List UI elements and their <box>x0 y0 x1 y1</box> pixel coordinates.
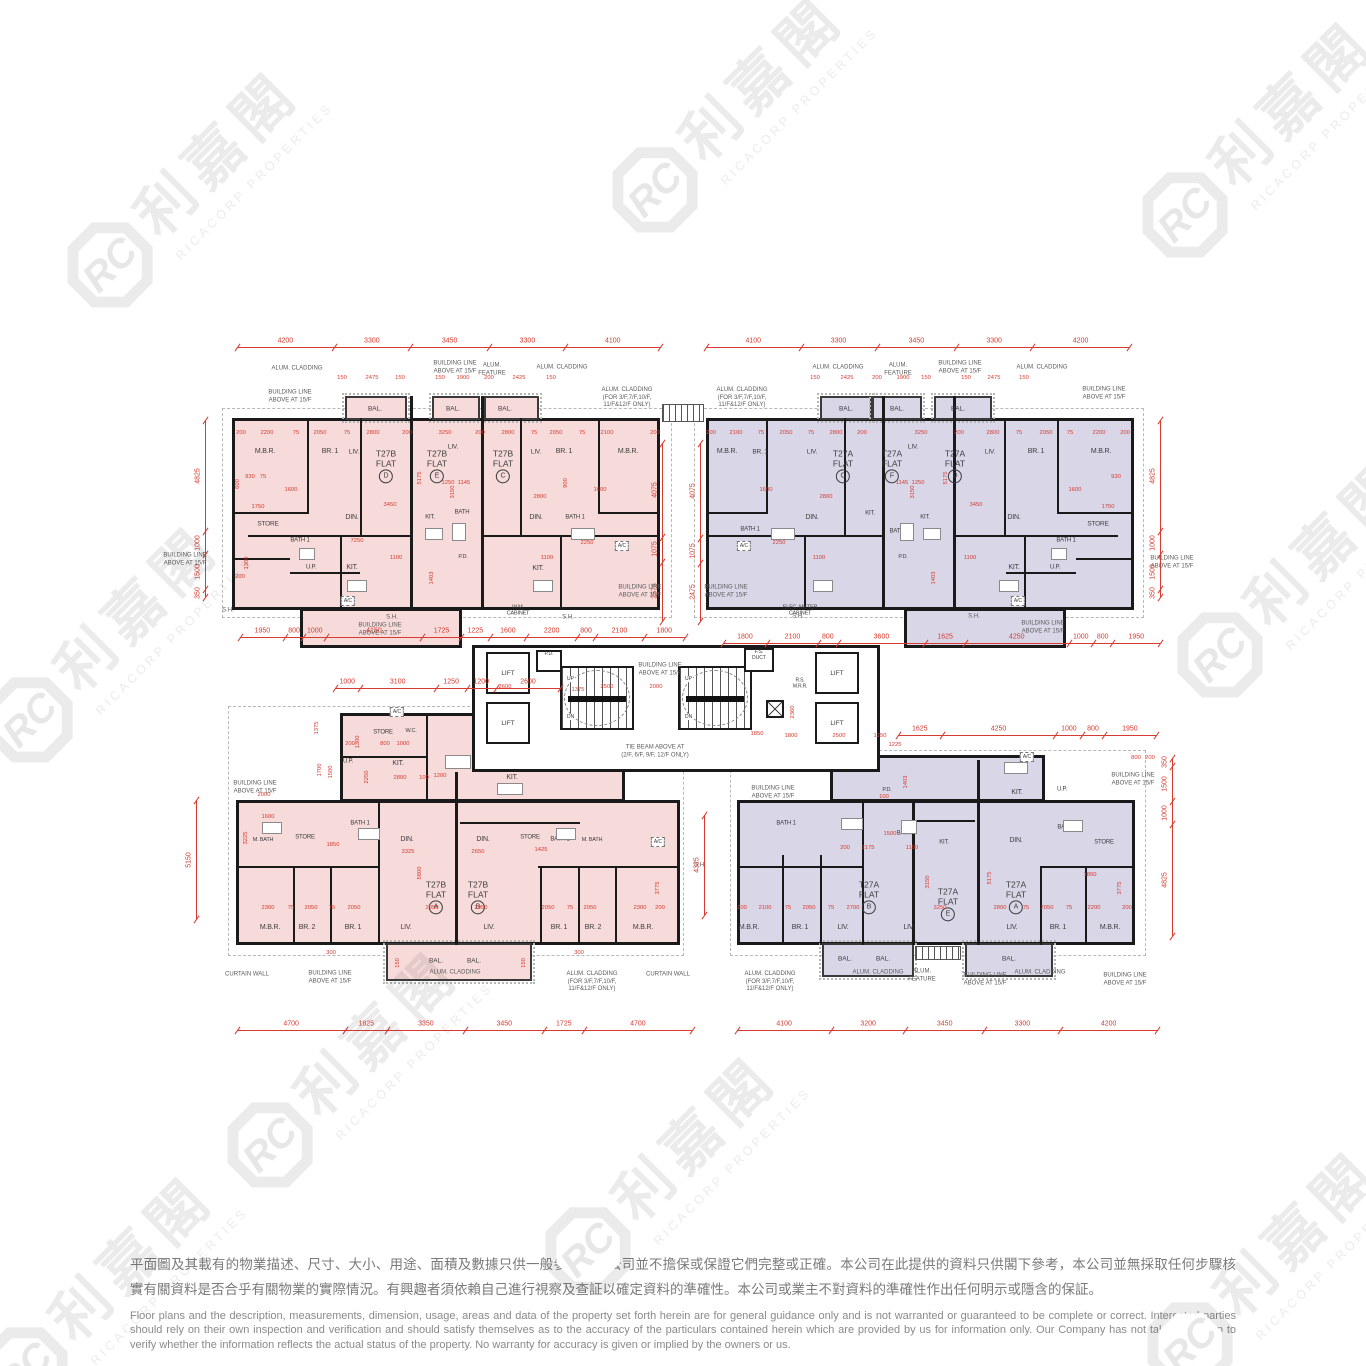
room-label: LIV. <box>349 448 359 455</box>
annotation-label: ALUM. FEATURE <box>908 969 936 984</box>
wall-segment <box>977 760 980 945</box>
dim-label: 3450 <box>442 338 458 345</box>
dim-sub-label: 800 <box>1131 755 1141 761</box>
fixture <box>999 580 1019 592</box>
room-label: M. BATH <box>582 837 603 843</box>
dim-label: 1825 <box>359 1021 375 1028</box>
dim-chain-line <box>662 443 663 621</box>
room-label: BATH 1 <box>740 527 759 534</box>
room-label: KIT. <box>920 515 930 522</box>
dim-sub-label: 200 <box>857 430 867 436</box>
dim-sub-label: 2500 <box>833 733 846 739</box>
dim-sub-label: 2650 <box>472 849 485 855</box>
room-label: BR. 2 <box>585 924 602 932</box>
dim-label: 1075 <box>690 543 697 559</box>
room-label: KIT. <box>939 840 949 847</box>
dim-label: 800 <box>1087 726 1099 733</box>
room-label: M.B.R. <box>255 448 275 456</box>
room-label: DIN. <box>529 514 542 522</box>
dim-sub-label: 150 <box>921 375 931 381</box>
room-label: BATH 1 <box>290 538 309 545</box>
wall-segment <box>598 512 660 514</box>
room-label: LIV. <box>448 443 458 450</box>
dim-sub-label: 1403 <box>931 572 937 585</box>
dim-sub-label: 2200 <box>1088 905 1101 911</box>
dim-sub-label: 1600 <box>760 487 773 493</box>
dim-sub-label: 2100 <box>601 430 614 436</box>
dim-sub-label: 75 <box>293 430 299 436</box>
dim-chain-line <box>706 347 1129 348</box>
dim-chain-line <box>1172 758 1173 936</box>
fixture <box>452 523 466 541</box>
dim-sub-label: 75 <box>758 430 764 436</box>
dim-label: 3100 <box>390 679 406 686</box>
balcony-label: BAL. <box>1002 956 1016 963</box>
dim-sub-label: 75 <box>1016 430 1022 436</box>
room-label: M.B.R. <box>739 924 759 932</box>
dim-sub-label: 200 <box>1122 905 1132 911</box>
wall-segment <box>460 822 580 824</box>
room-label: P.D. <box>898 554 907 560</box>
room-label: W.M. CABINET <box>507 605 529 618</box>
dim-tick <box>203 594 209 602</box>
room-label: M.B.R. <box>717 448 737 456</box>
dim-chain-line <box>723 643 1160 644</box>
disclaimer-english: Floor plans and the description, measure… <box>130 1309 1236 1353</box>
dim-sub-label: 150 <box>435 375 445 381</box>
dim-sub-label: 200 <box>1145 755 1155 761</box>
room-label: KIT. <box>865 511 875 518</box>
room-label: U.P. <box>1050 565 1060 572</box>
room-label: DIN. <box>400 836 413 844</box>
dim-label: 2200 <box>544 628 560 635</box>
flat-word: FLAT <box>945 459 965 469</box>
dim-sub-label: 2050 <box>780 430 793 436</box>
dim-sub-label: 200 <box>840 845 850 851</box>
fixture <box>901 820 917 834</box>
balcony-label: BAL. <box>951 406 965 413</box>
dim-sub-label: 3150 <box>910 486 916 499</box>
dim-label: 350 <box>195 587 202 599</box>
dim-sub-label: 3225 <box>243 832 249 845</box>
room-label: BATH 1 <box>565 515 584 522</box>
flat-label: T27BFLATC <box>493 448 513 483</box>
fixture <box>900 523 914 541</box>
fixture <box>445 755 471 769</box>
dim-label: 2475 <box>690 584 697 600</box>
balcony-label: BAL. <box>446 406 460 413</box>
dim-chain-line <box>335 688 560 689</box>
fixture <box>1063 820 1083 832</box>
wall-segment <box>782 855 784 945</box>
room-label: M. BATH <box>253 837 274 843</box>
flat-letter: A <box>1009 901 1023 915</box>
wall-segment <box>915 820 975 822</box>
annotation-label: S.H. <box>694 862 706 870</box>
dim-sub-label: 200 <box>737 905 747 911</box>
dim-sub-label: 2300 <box>634 905 647 911</box>
wall-segment <box>615 868 617 945</box>
dim-sub-label: 1403 <box>429 572 435 585</box>
dim-sub-label: 200 <box>236 430 246 436</box>
wall-segment <box>455 772 458 945</box>
room-label: LIV. <box>903 924 914 932</box>
dim-sub-label: 1700 <box>317 764 323 777</box>
alum-feature <box>915 946 961 960</box>
dim-label: 4700 <box>283 1021 299 1028</box>
dim-sub-label: 150 <box>395 375 405 381</box>
dim-sub-label: 2950 <box>475 905 488 911</box>
dim-sub-label: 2050 <box>803 905 816 911</box>
dim-sub-label: 1200 <box>434 773 447 779</box>
room-label: BR. 2 <box>299 924 316 932</box>
room-label: LIV. <box>483 924 494 932</box>
dim-sub-label: 2250 <box>364 771 370 784</box>
dim-sub-label: 1225 <box>889 742 902 748</box>
flat-letter: D <box>379 470 393 484</box>
wall-segment <box>232 512 308 514</box>
dim-sub-label: 2800 <box>394 775 407 781</box>
balcony-label: BAL. <box>368 406 382 413</box>
flat-letter: C <box>836 470 850 484</box>
annotation-label: ALUM. CLADDING <box>271 365 322 373</box>
annotation-label: BUILDING LINE ABOVE AT 15/F <box>308 971 351 986</box>
dim-label: 1000 <box>339 679 355 686</box>
room-label: U.P. <box>343 759 353 766</box>
room-label: DIN. <box>1007 514 1020 522</box>
dim-label: 3350 <box>418 1021 434 1028</box>
dim-label: 1600 <box>500 628 516 635</box>
fs-duct-box: F.S. DUCT <box>744 648 774 672</box>
stair-landing <box>686 696 745 702</box>
vd-box <box>766 700 784 718</box>
dim-tick <box>194 916 200 924</box>
dim-label: 4200 <box>1101 1021 1117 1028</box>
flat-letter: D <box>948 470 962 484</box>
annotation-label: ALUM. CLADDING (FOR 3/F,7/F,10/F, 11/F&1… <box>601 387 652 410</box>
wall-segment <box>953 396 956 610</box>
dim-tick <box>1158 640 1164 648</box>
room-label: LIV. <box>531 448 541 455</box>
dim-sub-label: 2475 <box>988 375 1001 381</box>
annotation-label: BUILDING LINE ABOVE AT 15/F <box>1111 773 1154 788</box>
ac-unit-label: A/C <box>615 541 629 551</box>
dim-sub-label: 930 <box>245 474 255 480</box>
room-label: KIT. <box>346 564 357 572</box>
dim-sub-label: 1750 <box>252 504 265 510</box>
ac-unit-label: A/C <box>651 837 665 847</box>
dim-sub-label: 75 <box>344 430 350 436</box>
dim-label: 1000 <box>1061 726 1077 733</box>
dim-sub-label: 1800 <box>785 733 798 739</box>
room-label: STORE <box>373 730 393 737</box>
dim-sub-label: 1900 <box>457 375 470 381</box>
wall-segment <box>1006 572 1076 574</box>
flat-word: FLAT <box>468 890 488 900</box>
wall-segment <box>737 866 862 868</box>
dim-tick <box>1127 344 1133 352</box>
room-label: BR. 1 <box>345 924 362 932</box>
balcony-label: BAL. <box>498 406 512 413</box>
room-label: BR. 1 <box>322 448 339 456</box>
annotation-label: BUILDING LINE ABOVE AT 15/F <box>751 786 794 801</box>
dim-sub-label: 2600 <box>499 684 512 690</box>
dim-label: 350 <box>1162 756 1169 768</box>
dim-sub-label: 75 <box>579 430 585 436</box>
room-label: KIT. <box>506 774 517 782</box>
dim-sub-label: 2050 <box>314 430 327 436</box>
dim-sub-label: 2800 <box>994 905 1007 911</box>
stair-down-label: DN <box>684 714 693 720</box>
wall-segment <box>766 418 768 514</box>
wall-segment <box>882 396 885 610</box>
room-label: KIT. <box>1011 789 1022 797</box>
dim-sub-label: 1100 <box>813 555 825 561</box>
dim-chain-line <box>700 443 701 621</box>
fixture <box>347 580 367 592</box>
dim-sub-label: 3250 <box>915 430 928 436</box>
dim-label: 4250 <box>991 726 1007 733</box>
dim-sub-label: 300 <box>326 950 336 956</box>
dim-sub-label: 1375 <box>314 722 320 735</box>
annotation-label: BUILDING LINE ABOVE AT 15/F <box>704 585 747 600</box>
room-label: BATH 1 <box>1056 538 1075 545</box>
dim-label: 1950 <box>255 628 271 635</box>
annotation-label: BUILDING LINE ABOVE AT 15/F <box>233 781 276 796</box>
dim-sub-label: 1600 <box>262 814 275 820</box>
dim-label: 3200 <box>860 1021 876 1028</box>
dim-label: 1500 <box>1162 776 1169 792</box>
wall-segment <box>307 418 309 514</box>
dim-sub-label: 2050 <box>305 905 318 911</box>
room-label: DIN. <box>805 514 818 522</box>
dim-sub-label: 930 <box>1111 474 1121 480</box>
dim-tick <box>702 912 708 920</box>
dim-chain-line <box>205 420 206 597</box>
fixture <box>299 548 315 560</box>
dim-label: 1000 <box>307 628 323 635</box>
flat-tower: T27A <box>1006 879 1026 889</box>
dim-sub-label: 1403 <box>903 776 909 789</box>
dim-label: 800 <box>288 628 300 635</box>
annotation-label: ALUM. CLADDING (FOR 3/F,7/F,10/F, 11/F&1… <box>744 971 795 994</box>
balcony-label: BAL. <box>876 956 890 963</box>
dim-tick <box>660 618 666 626</box>
dim-sub-label: 200 <box>655 905 665 911</box>
dim-label: 1200 <box>474 679 490 686</box>
dim-label: 4100 <box>745 338 761 345</box>
dim-sub-label: 1300 <box>244 557 250 570</box>
annotation-label: BUILDING LINE ABOVE AT 15/F <box>638 663 681 678</box>
dim-sub-label: 2475 <box>366 375 379 381</box>
room-label: M.B.R. <box>633 924 653 932</box>
wall-segment <box>481 396 484 610</box>
dim-sub-label: 2000 <box>650 684 663 690</box>
dim-sub-label: 2050 <box>542 905 555 911</box>
dim-sub-label: 150 <box>961 375 971 381</box>
balcony-label: BAL. <box>429 958 443 965</box>
dim-sub-label: 2800 <box>502 430 515 436</box>
flat-tower: T27A <box>938 886 958 896</box>
dim-sub-label: 1145 <box>896 480 908 486</box>
dim-label: 4075 <box>690 483 697 499</box>
dim-label: 3600 <box>874 634 890 641</box>
dim-sub-label: 150 <box>546 375 556 381</box>
annotation-label: ALUM. CLADDING <box>852 969 903 977</box>
annotation-label: ALUM. FEATURE <box>478 363 506 378</box>
balcony-label: BAL. <box>467 958 481 965</box>
dim-sub-label: 2700 <box>847 905 860 911</box>
dim-sub-label: 1100 <box>964 555 976 561</box>
flat-tower: T27A <box>833 448 853 458</box>
dim-chain-line <box>737 1030 1157 1031</box>
dim-sub-label: 2050 <box>348 905 361 911</box>
dim-sub-label: 2175 <box>862 845 875 851</box>
room-label: LIV. <box>908 443 918 450</box>
dim-label: 1225 <box>468 628 484 635</box>
dim-sub-label: 300 <box>574 950 584 956</box>
dim-label: 5150 <box>186 852 193 868</box>
stair-up-label: UP <box>566 676 575 682</box>
dim-tick <box>698 618 704 626</box>
room-label: LIV. <box>400 924 411 932</box>
lift: LIFT <box>815 652 859 694</box>
dim-sub-label: 75 <box>808 430 814 436</box>
dim-sub-label: 3250 <box>439 430 452 436</box>
dim-label: 3450 <box>496 1021 512 1028</box>
wall-segment <box>1058 512 1134 514</box>
flat-letter: B <box>862 901 876 915</box>
ac-unit-label: A/C <box>1020 752 1034 762</box>
dim-label: 1625 <box>937 634 953 641</box>
fixture <box>358 828 380 840</box>
fixture <box>813 580 833 592</box>
dim-sub-label: 1145 <box>458 480 470 486</box>
dim-sub-label: 1300 <box>355 736 361 749</box>
dim-sub-label: 2500 <box>601 684 614 690</box>
dim-sub-label: 2425 <box>841 375 854 381</box>
dim-sub-label: 2800 <box>820 494 833 500</box>
flat-tower: T27B <box>468 879 488 889</box>
dim-sub-label: 7250 <box>351 538 364 544</box>
fixture <box>425 528 443 540</box>
dim-sub-label: 1250 <box>442 480 455 486</box>
wall-segment <box>410 396 413 610</box>
dim-tick <box>683 634 689 642</box>
floor-plan: BAL.BAL.BAL.M.B.R.BR. 1LIV.LIV.LIV.BR. 1… <box>0 0 1366 1366</box>
disclaimer-chinese: 平面圖及其載有的物業描述、尺寸、大小、用途、面積及數據只供一般參考，本公司並不擔… <box>130 1253 1236 1303</box>
dim-sub-label: 100 <box>419 775 429 781</box>
fixture <box>923 528 941 540</box>
annotation-label: BUILDING LINE ABOVE AT 15/F <box>268 390 311 405</box>
dim-label: 350 <box>1150 587 1157 599</box>
wall-segment <box>560 535 562 610</box>
dim-sub-label: 1100 <box>390 555 402 561</box>
wall-segment <box>360 418 362 535</box>
wall-segment <box>1076 558 1134 560</box>
flat-word: FLAT <box>427 459 447 469</box>
flat-label: T27AFLATE <box>938 886 958 921</box>
annotation-label: S.H. <box>386 614 398 622</box>
wall-segment <box>578 868 580 945</box>
dim-sub-label: 1250 <box>874 733 887 739</box>
dim-sub-label: 1100 <box>541 555 553 561</box>
wall-segment <box>378 800 380 945</box>
room-label: BATH <box>455 510 470 517</box>
room-label: STORE <box>1087 520 1108 527</box>
dim-label: 3300 <box>831 338 847 345</box>
stair-landing <box>568 696 627 702</box>
flat-tower: T27B <box>426 879 446 889</box>
wall-segment <box>236 866 378 868</box>
dim-label: 800 <box>822 634 834 641</box>
room-label: M.B.R. <box>1091 448 1111 456</box>
dim-sub-label: 2050 <box>584 905 597 911</box>
flat-tower: T27A <box>859 879 879 889</box>
annotation-label: BUILDING LINE ABOVE AT 15/F <box>938 361 981 376</box>
dim-sub-label: 150 <box>1019 375 1029 381</box>
flat-word: FLAT <box>493 459 513 469</box>
annotation-label: BUILDING LINE ABOVE AT 15/F <box>963 973 1006 988</box>
dim-label: 4700 <box>630 1021 646 1028</box>
room-label: M.B.R. <box>618 448 638 456</box>
dim-label: 3300 <box>986 338 1002 345</box>
ac-unit-label: A/C <box>1011 596 1025 606</box>
wall-segment <box>955 535 1118 537</box>
dim-sub-label: 100 <box>879 794 889 800</box>
dim-label: 4825 <box>195 468 202 484</box>
wall-segment <box>1004 418 1006 535</box>
annotation-label: BUILDING LINE ABOVE AT 15/F <box>1082 387 1125 402</box>
annotation-label: BUILDING LINE ABOVE AT 15/F <box>1103 973 1146 988</box>
annotation-label: ALUM. CLADDING <box>1014 969 1065 977</box>
dim-sub-label: 3150 <box>925 876 931 889</box>
room-label: DIN. <box>1009 837 1022 845</box>
dim-sub-label: 75 <box>531 430 537 436</box>
dim-sub-label: 1500 <box>328 766 334 779</box>
dim-sub-label: 1600 <box>1069 487 1082 493</box>
dim-sub-label: 3775 <box>655 882 661 895</box>
dim-chain-line <box>898 735 1156 736</box>
dim-sub-label: 2200 <box>261 430 274 436</box>
room-label: BATH 1 <box>350 821 369 828</box>
dim-label: 800 <box>1097 634 1109 641</box>
dim-label: 4100 <box>605 338 621 345</box>
annotation-label: S.H. <box>562 614 574 622</box>
ac-unit-label: A/C <box>390 707 404 717</box>
flat-tower: T27B <box>427 448 447 458</box>
room-label: M.B.R. <box>1100 924 1120 932</box>
dim-label: 3450 <box>909 338 925 345</box>
dim-label: 4825 <box>1150 468 1157 484</box>
alum-feature <box>662 404 704 422</box>
room-label: BATH 1 <box>776 821 795 828</box>
dim-label: 1000 <box>1162 805 1169 821</box>
dim-sub-label: 1850 <box>751 731 764 737</box>
dim-label: 1950 <box>1122 726 1138 733</box>
dim-sub-label: 200 <box>475 430 485 436</box>
wall-segment <box>426 713 428 800</box>
dim-label: 1725 <box>434 628 450 635</box>
annotation-label: ALUM. CLADDING <box>812 364 863 372</box>
flat-label: T27BFLATE <box>427 448 447 483</box>
dim-label: 1000 <box>1150 535 1157 551</box>
annotation-label: ALUM. CLADDING (FOR 3/F,7/F,10/F, 11/F&1… <box>716 387 767 410</box>
annotation-label: CURTAIN WALL <box>646 971 690 979</box>
dim-sub-label: 1100 <box>906 845 918 851</box>
floor-plan-page: BAL.BAL.BAL.M.B.R.BR. 1LIV.LIV.LIV.BR. 1… <box>0 0 1366 1366</box>
annotation-label: BUILDING LINE ABOVE AT 15/F <box>618 585 661 600</box>
